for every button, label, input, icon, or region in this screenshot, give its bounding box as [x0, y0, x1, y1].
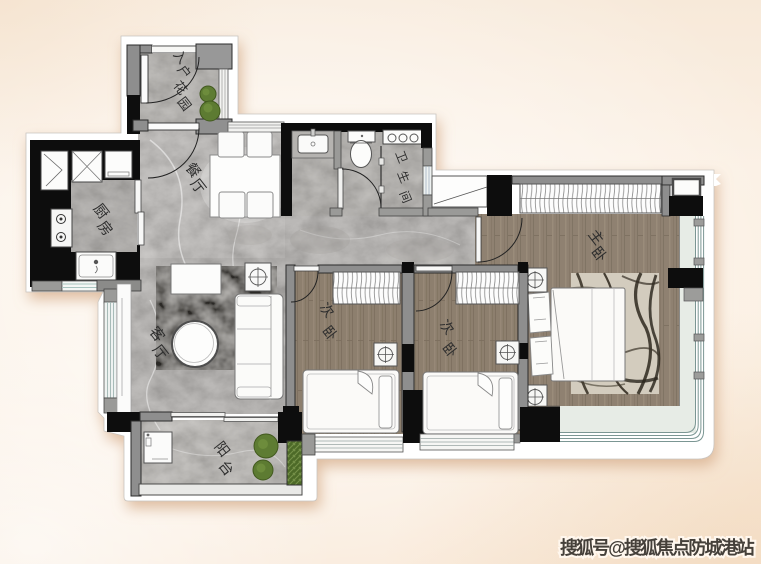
svg-text:搜狐号@搜狐焦点防城港站: 搜狐号@搜狐焦点防城港站: [560, 537, 755, 558]
